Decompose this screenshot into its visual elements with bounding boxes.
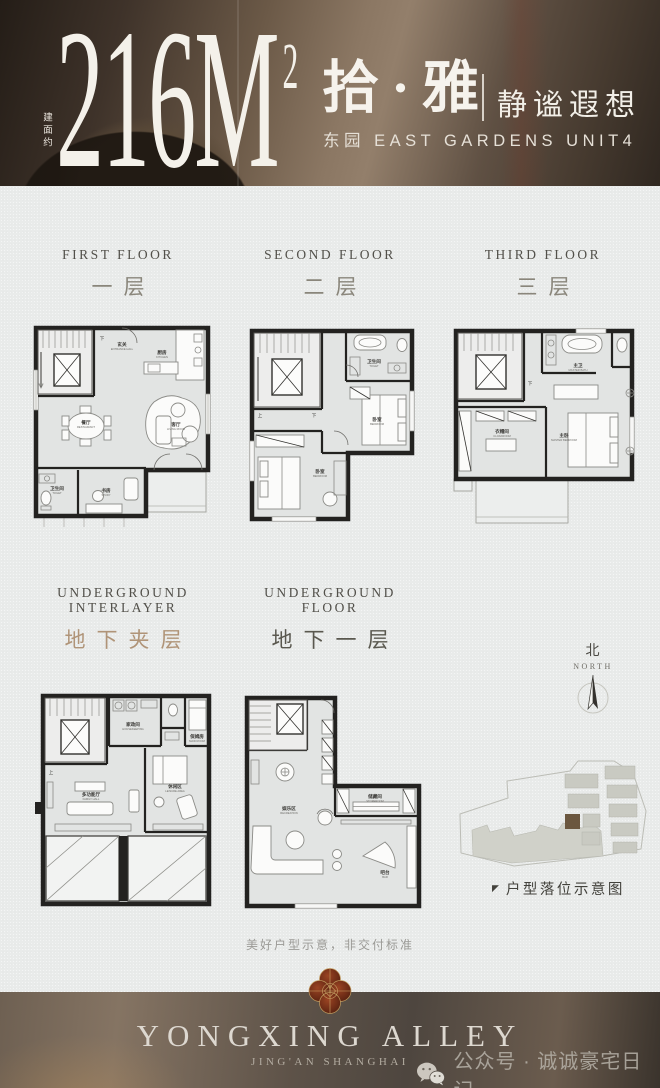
- room-label: 卫生间: [50, 485, 64, 492]
- svg-text:MASTER BATH: MASTER BATH: [569, 368, 588, 372]
- stair-up-glyph: 上: [258, 412, 263, 418]
- svg-text:LIVING ROOM: LIVING ROOM: [167, 427, 186, 431]
- room-label: 主卫: [573, 362, 583, 369]
- svg-text:BEDROOM: BEDROOM: [370, 422, 385, 426]
- room-label: 客厅: [170, 421, 181, 428]
- svg-text:LEISURE AREA: LEISURE AREA: [165, 789, 185, 793]
- svg-text:HOUSEKEEPING: HOUSEKEEPING: [122, 727, 144, 731]
- stairs-elevator: [38, 330, 92, 394]
- svg-text:KITCHEN: KITCHEN: [156, 355, 168, 359]
- north-en: NORTH: [566, 662, 620, 671]
- underground-floor-cn: 地下一层: [225, 624, 435, 654]
- floorplan-underground-interlayer: 上 家: [33, 686, 221, 916]
- label-underground-floor: UNDERGROUND FLOOR 地下一层: [225, 585, 435, 654]
- wechat-watermark: 公众号 · 诚诚豪宅日记: [416, 1045, 660, 1088]
- third-floor-en: THIRD FLOOR: [438, 247, 648, 262]
- label-first-floor: FIRST FLOOR 一层: [13, 247, 223, 301]
- poster-page: 建面约 216M2 拾·雅 静谧遐想 东园 EAST GARDENS UNIT4…: [0, 0, 660, 1088]
- closet-column: [322, 720, 333, 784]
- room-label: 卧室: [372, 416, 382, 423]
- wechat-icon: [416, 1061, 446, 1087]
- svg-text:ENTRANCE HALL: ENTRANCE HALL: [111, 347, 134, 351]
- svg-text:FAMILY HALL: FAMILY HALL: [83, 797, 100, 801]
- header-banner: 建面约 216M2 拾·雅 静谧遐想 东园 EAST GARDENS UNIT4: [0, 0, 660, 186]
- disclaimer-text: 美好户型示意，非交付标准: [180, 936, 480, 953]
- subtitle-en: 东园 EAST GARDENS UNIT4: [323, 127, 636, 151]
- svg-text:CLOAKROOM: CLOAKROOM: [493, 434, 511, 438]
- room-label: 保姆房: [189, 733, 204, 740]
- floorplan-first-floor: 下 玄关ENTRANCE HALL: [26, 318, 218, 534]
- room-label: 卧室: [315, 468, 325, 475]
- brand-logo-quatrefoil-icon: [307, 966, 353, 1016]
- label-third-floor: THIRD FLOOR 三层: [438, 247, 648, 301]
- siteplan-caption-text: 户型落位示意图: [506, 878, 625, 899]
- svg-text:MAID ROOM: MAID ROOM: [189, 739, 206, 743]
- third-floor-cn: 三层: [438, 271, 648, 301]
- floorplan-third-floor: 下 主卫MASTER BATH 主卧MASTER BEDROOM 衣帽间CLOA…: [446, 321, 644, 535]
- north-cn: 北: [566, 640, 620, 660]
- first-floor-en: FIRST FLOOR: [13, 247, 223, 262]
- underground-floor-en: UNDERGROUND FLOOR: [255, 585, 405, 615]
- header-divider: [482, 74, 484, 121]
- underground-interlayer-cn: 地下夹层: [18, 624, 228, 654]
- room-label: 储藏间: [368, 793, 382, 800]
- svg-text:STOREROOM: STOREROOM: [366, 799, 384, 803]
- stairs-elevator: [249, 700, 307, 750]
- room-label: 书房: [101, 487, 111, 494]
- void-areas: [46, 836, 206, 901]
- floorplan-second-floor: 上 下 卫生间TOILET 卧室BEDROOM 卧室BEDROOM: [242, 321, 424, 529]
- siteplan-caption: ◤ 户型落位示意图: [492, 878, 625, 899]
- watermark-text: 公众号 · 诚诚豪宅日记: [454, 1045, 660, 1088]
- svg-text:BEDROOM: BEDROOM: [313, 474, 328, 478]
- svg-text:RESTAURANT: RESTAURANT: [77, 425, 95, 429]
- area-prefix-label: 建面约: [39, 112, 53, 150]
- area-number: 216M: [56, 0, 278, 186]
- north-indicator: 北 NORTH: [566, 640, 620, 724]
- site-plan: [452, 752, 654, 876]
- tagline-cn: 静谧遐想: [497, 80, 641, 124]
- stairs-elevator: [458, 333, 522, 399]
- label-underground-interlayer: UNDERGROUND INTERLAYER 地下夹层: [18, 585, 228, 654]
- room-label: 吧台: [380, 869, 390, 876]
- second-floor-en: SECOND FLOOR: [225, 247, 435, 262]
- first-floor-cn: 一层: [13, 271, 223, 301]
- svg-text:RECREATION: RECREATION: [280, 811, 297, 815]
- room-label: 衣帽间: [495, 428, 509, 435]
- room-label: 玄关: [117, 341, 127, 348]
- svg-text:STUDY: STUDY: [101, 493, 110, 497]
- svg-text:TOILET: TOILET: [369, 364, 379, 368]
- svg-text:TOILET: TOILET: [52, 491, 62, 495]
- floorplan-underground-floor: 储藏间STOREROOM 吧台BAR 娱乐区RECREATION: [237, 688, 429, 918]
- site-highlighted-unit: [565, 814, 580, 829]
- room-label: 多功能厅: [82, 791, 101, 798]
- stair-up-glyph: 上: [49, 769, 54, 775]
- svg-text:MASTER BEDROOM: MASTER BEDROOM: [551, 438, 578, 442]
- room-label: 主卧: [559, 432, 569, 439]
- stairs-elevator: [254, 333, 320, 407]
- maid-room: [189, 700, 206, 730]
- compass-needle-icon: [566, 671, 620, 719]
- room-label: 休闲区: [167, 783, 182, 790]
- flag-icon: ◤: [492, 884, 499, 893]
- room-label: 卫生间: [367, 358, 381, 365]
- label-second-floor: SECOND FLOOR 二层: [225, 247, 435, 301]
- room-label: 厨房: [157, 349, 167, 356]
- area-value: 216M2: [56, 10, 298, 186]
- room-label: 餐厅: [80, 419, 91, 426]
- stairs-elevator: [45, 698, 105, 762]
- ground-hatch: [44, 518, 124, 527]
- svg-text:BAR: BAR: [382, 875, 388, 879]
- second-floor-cn: 二层: [225, 271, 435, 301]
- unit-name-cn: 拾·雅: [322, 58, 491, 120]
- room-label: 家政间: [126, 721, 140, 728]
- room-label: 娱乐区: [282, 805, 296, 812]
- underground-interlayer-en: UNDERGROUND INTERLAYER: [43, 585, 203, 615]
- area-superscript: 2: [282, 30, 298, 103]
